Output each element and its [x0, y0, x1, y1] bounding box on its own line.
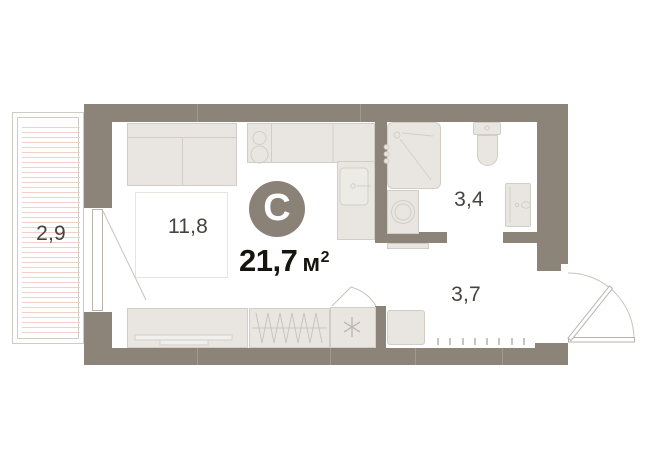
wall-kitchen-bathroom-divider — [375, 122, 387, 242]
wall-seam — [197, 104, 198, 122]
wall-top — [84, 104, 537, 122]
shower-icon — [387, 122, 441, 189]
wall-seam — [330, 348, 331, 365]
shoe-cabinet — [387, 310, 425, 345]
toilet-bowl-icon — [477, 135, 498, 166]
wall-bottom-entry-stub — [535, 343, 568, 365]
threshold-tick — [462, 338, 464, 345]
tv-stand — [127, 308, 248, 348]
floor-plan: 2,9 11,8 3,4 3,7 С 21,7м2 — [0, 0, 654, 470]
wall-right — [537, 104, 568, 271]
toilet-tank-icon — [473, 122, 501, 135]
threshold-tick — [437, 338, 439, 345]
total-area-superscript: 2 — [321, 249, 329, 266]
wall-left-upper — [84, 104, 112, 208]
apartment-type-letter: С — [263, 189, 290, 227]
balcony-area-label: 2,9 — [29, 222, 73, 246]
wall-seam — [197, 348, 198, 365]
cooktop-icon — [247, 123, 272, 163]
total-area-unit: м — [302, 250, 319, 277]
apartment-type-badge: С — [249, 181, 305, 237]
closet — [330, 307, 376, 348]
wall-seam — [360, 104, 361, 122]
bathroom-sink-icon — [505, 183, 531, 227]
entrance-door-open-leaf — [569, 338, 635, 343]
entrance-door-icon — [568, 286, 613, 341]
threshold-tick — [498, 338, 500, 345]
hallway-area-label: 3,7 — [444, 283, 488, 307]
wall-seam — [502, 348, 503, 365]
threshold-tick — [449, 338, 451, 345]
living-area-label: 11,8 — [166, 215, 210, 239]
total-area-value: 21,7 — [239, 243, 297, 278]
threshold-tick — [474, 338, 476, 345]
wall-bathroom-bottom-right — [503, 232, 537, 243]
kitchen-counter-column — [337, 161, 375, 240]
threshold-tick — [486, 338, 488, 345]
balcony-door-icon — [93, 210, 103, 311]
washing-machine-icon — [387, 190, 419, 234]
wardrobe — [249, 308, 330, 348]
entrance-door-swing-arc — [568, 273, 634, 339]
wall-seam — [415, 348, 416, 365]
total-area-label: 21,7м2 — [239, 245, 329, 278]
sofa-seat-seam — [182, 138, 183, 185]
wall-hall-closet-divider — [375, 306, 386, 348]
bathroom-door-mat — [387, 243, 429, 249]
threshold-tick — [523, 338, 525, 345]
bathroom-area-label: 3,4 — [447, 188, 491, 212]
threshold-tick — [511, 338, 513, 345]
door-hinge-notch — [561, 264, 568, 271]
closet-door-icon — [332, 287, 376, 306]
wall-bottom — [84, 348, 568, 365]
